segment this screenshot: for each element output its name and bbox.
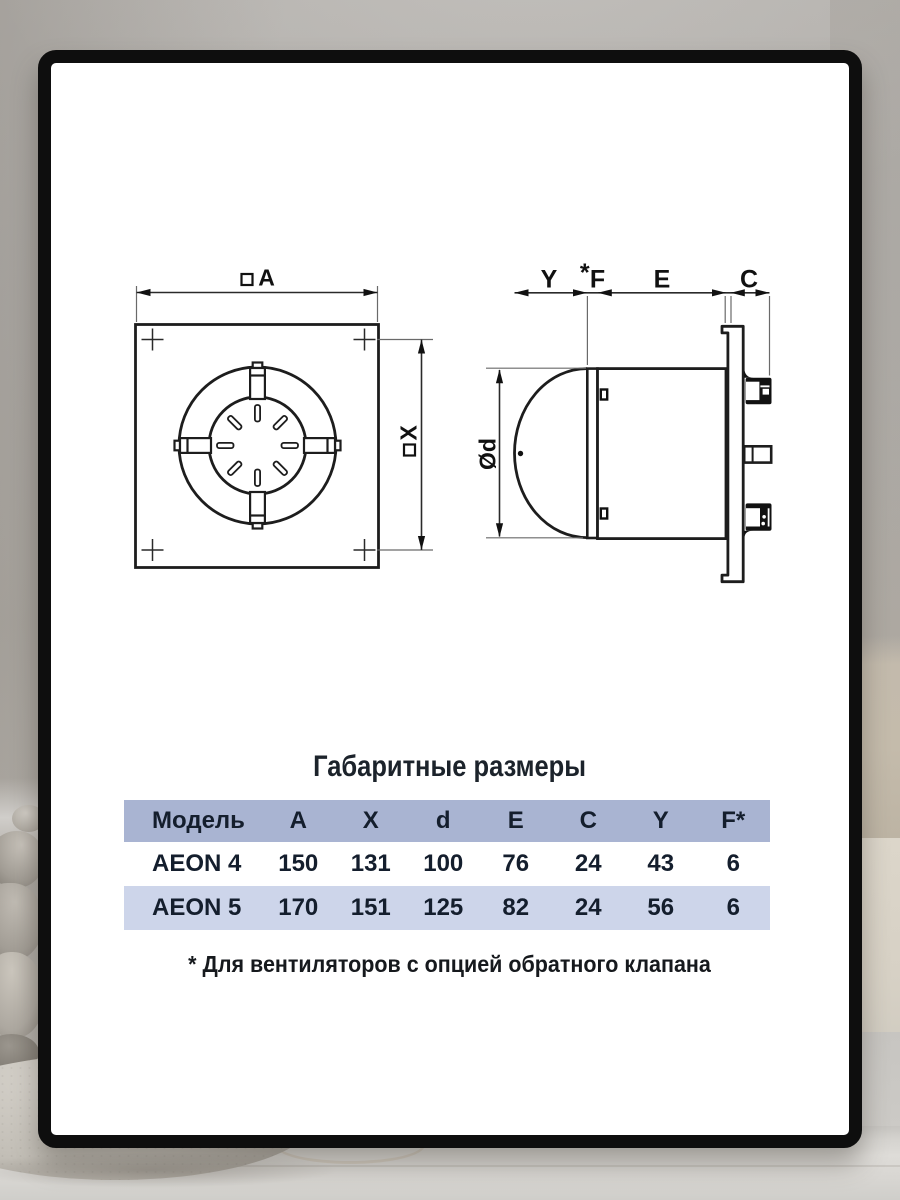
svg-text:F: F (590, 266, 605, 294)
svg-text:X: X (396, 425, 422, 441)
svg-text:A: A (258, 265, 275, 291)
svg-text:Y: Y (541, 266, 558, 294)
svg-text:C: C (740, 266, 758, 294)
svg-text:E: E (654, 266, 671, 294)
svg-text:Ød: Ød (475, 438, 501, 470)
svg-text:*: * (580, 259, 590, 287)
